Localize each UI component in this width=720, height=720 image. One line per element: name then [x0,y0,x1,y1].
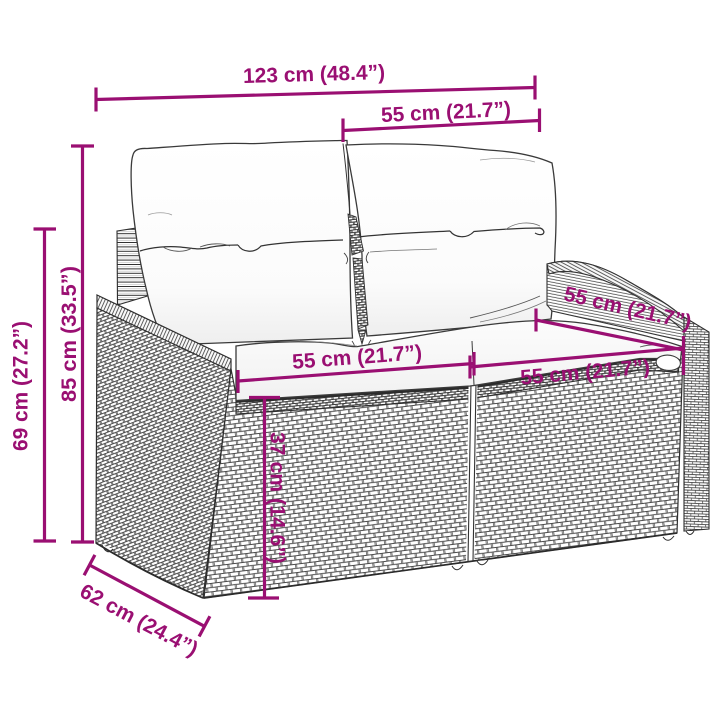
svg-text:85 cm (33.5”): 85 cm (33.5”) [58,266,81,402]
svg-text:69 cm (27.2”): 69 cm (27.2”) [10,321,33,451]
svg-text:123 cm (48.4”): 123 cm (48.4”) [243,61,386,88]
svg-text:37 cm (14.6”): 37 cm (14.6”) [266,432,289,564]
